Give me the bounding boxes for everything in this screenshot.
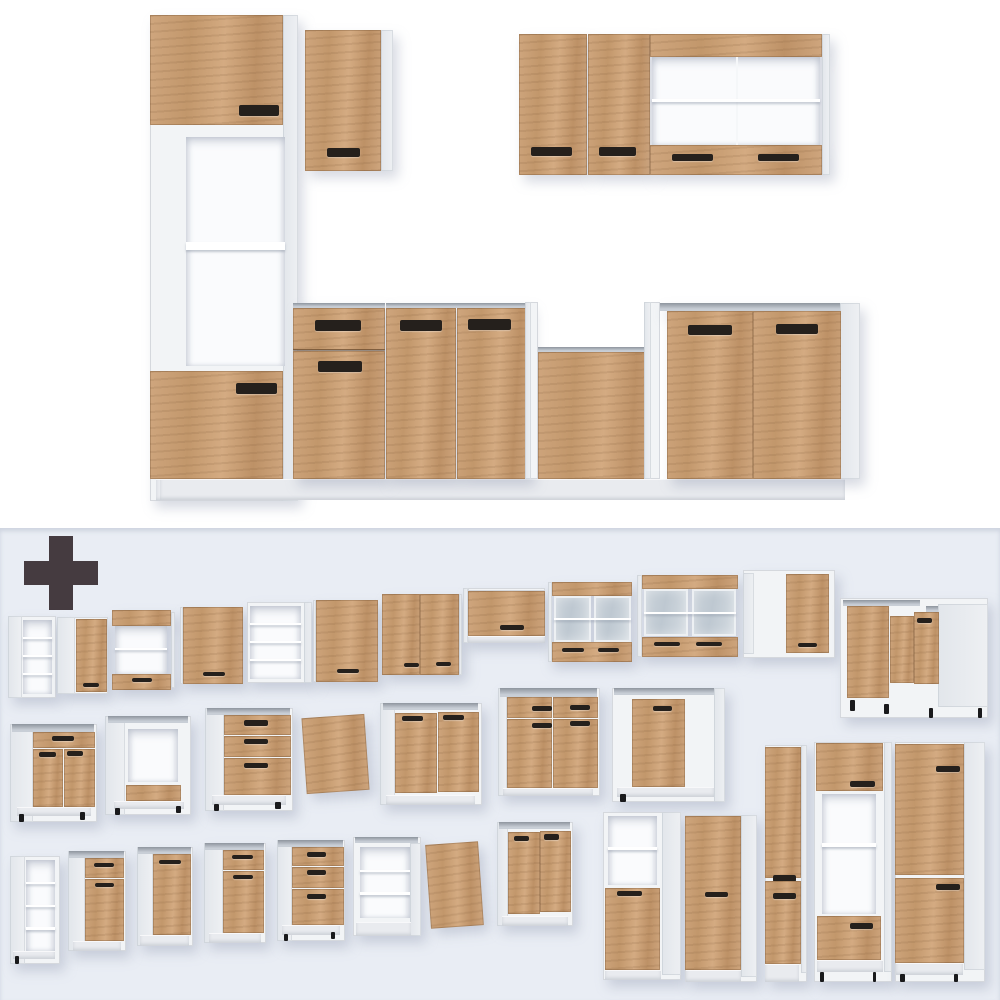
base-narrow-drawer-door-2 [204,843,266,943]
assembled-wall-open-unit [650,34,830,175]
side-panel [644,302,651,479]
wall-cabinet-single-door-1 [180,607,243,684]
door-handle [936,884,959,890]
door-handle [617,891,642,896]
leg [954,974,959,982]
assembled-wall-cabinet [305,30,393,171]
door-handle [404,663,419,667]
shelf [23,637,52,639]
wood-front-panel [301,714,369,794]
top-rim [12,724,95,732]
leg [80,812,85,820]
wood-front-panel [650,34,822,57]
door-handle [307,894,326,899]
wood-front-panel [642,575,738,589]
wood-front-panel [425,841,484,928]
door-handle [532,706,552,711]
door-handle [514,836,529,841]
door-handle [653,706,672,711]
assembled-side-post-left [525,302,538,479]
wood-front-panel [64,749,95,807]
side-panel [938,604,988,707]
shelf [26,882,55,884]
leg [115,808,120,815]
leg [929,708,933,718]
side-panel [137,847,153,946]
door-handle [94,863,114,868]
door-handle [598,648,620,652]
shelf [360,870,410,872]
wall-cabinet-door-right [57,617,108,694]
wood-front-panel [667,311,753,479]
side-panel [743,573,754,655]
top-rim [138,847,191,854]
door-handle [468,319,511,330]
top-rim [207,708,291,715]
side-panel [525,302,531,479]
door-handle [52,736,75,741]
tall-fridge-housing [895,742,985,982]
plinth [386,795,475,805]
side-panel [459,594,462,675]
wood-front-panel [85,879,123,941]
base-narrow-drawer-door-1 [68,851,126,951]
wood-front-panel [507,719,552,788]
door-handle [443,715,463,720]
leg [884,704,888,715]
leg [15,956,19,964]
tall-narrow-two-door [765,745,807,982]
door-handle [532,723,552,728]
assembled-sink-low-front [538,347,658,479]
shelf [23,673,52,675]
leg [978,708,982,718]
door-handle [696,642,722,646]
door-handle [315,320,361,331]
wood-front-panel [552,582,632,596]
base-sink-two-door [380,703,482,805]
leg [850,700,854,711]
door-handle [203,672,224,676]
wood-front-panel [914,612,939,684]
wood-front-panel [765,747,801,877]
door-handle [307,852,326,857]
shelf [360,892,410,894]
wood-front-panel [605,888,660,969]
open-shelf-niche [186,137,285,365]
wood-front-panel [642,637,738,658]
assembled-wall-door-1 [519,34,587,175]
door-handle [95,883,114,888]
plinth [73,941,122,951]
side-panel [801,745,807,973]
door-handle [236,383,277,394]
side-panel [741,815,757,977]
plinth [765,964,799,982]
wood-front-panel [386,308,456,479]
wood-front-panel [552,642,632,662]
leg [19,814,24,822]
shelf [250,659,301,661]
side-panel [840,303,860,479]
plinth [502,916,568,926]
plinth [686,970,741,982]
open-shelf-niche [608,816,656,885]
base-drawer-two-door [10,724,97,822]
leg [900,974,905,982]
leg [820,972,824,982]
shelf [652,99,820,102]
wood-front-panel [632,699,685,787]
assembled-base-drawer-door [293,303,385,479]
door-handle [132,678,152,682]
leg [873,972,877,982]
leg [214,804,219,811]
wood-front-panel [895,744,964,875]
door-handle [244,763,269,768]
door-handle [688,325,732,335]
shelf [26,905,55,907]
wood-front-panel [223,871,264,933]
door-handle [758,154,799,161]
wall-flap-cabinet [463,588,545,643]
door-handle [233,875,253,880]
door-handle [500,625,525,630]
base-narrow-door [137,847,193,946]
base-oven-housing [105,716,191,815]
wood-front-panel [753,311,841,479]
door-handle [773,893,796,899]
top-rim [499,822,570,829]
door-handle [850,781,875,787]
wood-front-panel [847,606,888,697]
plinth [160,479,845,500]
shelf [250,623,301,625]
base-corner-cabinet [840,598,988,718]
side-panel [662,812,681,975]
plinth [896,963,964,975]
shelf [26,927,55,929]
assembled-kitchen-plinth [160,479,845,500]
door-handle [400,320,442,331]
assembled-side-post-right [644,302,660,479]
shelf [115,648,167,650]
side-panel [304,602,312,683]
wood-front-panel [890,616,914,683]
door-handle [850,923,873,929]
door-handle [705,892,728,897]
base-three-drawer [205,708,293,811]
top-rim [108,716,188,723]
shelf [608,847,656,850]
plinth [209,933,261,943]
door-handle [776,324,818,334]
door-handle [318,361,362,372]
base-three-drawer-small [277,840,345,941]
assembled-wall-door-2 [588,34,650,175]
open-shelf-niche [822,794,877,914]
side-panel [822,34,830,175]
plinth [503,788,593,796]
wood-front-panel [85,858,123,878]
base-sink-two-door-small [497,822,573,926]
side-panel [380,703,395,805]
wood-front-panel [538,352,658,479]
side-panel [57,617,75,694]
base-open-shelf-unit [353,837,421,936]
door-handle [159,860,180,864]
side-panel [410,843,421,936]
door-handle [307,870,326,875]
open-shelf-niche [360,847,410,918]
shelf [822,843,877,847]
tall-oven-microwave-housing [814,742,892,982]
plinth [605,970,661,980]
wood-front-panel [126,785,181,801]
tall-single-door-cabinet [685,815,757,982]
base-open-shelf-narrow [10,856,60,964]
plinth [356,922,410,936]
door-handle [337,669,359,674]
door-handle [402,716,422,721]
door-handle [531,147,572,156]
side-panel [381,30,393,171]
door-handle [936,766,959,772]
wall-corner-cabinet [743,570,835,658]
leg [275,802,280,809]
shelf [554,618,631,620]
door-handle [917,618,932,623]
wood-front-panel [438,712,479,792]
side-panel [884,742,892,972]
door-handle [232,855,253,860]
wood-front-panel [153,854,191,935]
plinth [817,960,883,972]
leg [176,806,181,813]
wood-front-panel [223,850,264,870]
open-shelf-niche [128,729,178,782]
side-panel [68,851,85,951]
appliance-front-panel-small [425,841,484,928]
side-panel [171,612,175,689]
side-panel [497,822,508,926]
wood-front-panel [457,308,530,479]
wood-front-panel [508,832,539,913]
wood-front-panel [76,619,107,692]
door-handle [599,147,636,156]
plus-symbol [24,536,98,610]
wall-open-shelf-narrow [8,616,56,698]
assembled-base-two-door [386,303,530,479]
door-handle [239,105,279,116]
plinth [468,636,545,643]
door-handle [798,643,816,647]
shelf [23,655,52,657]
door-handle [562,648,584,652]
product-image-canvas [0,0,1000,1000]
top-rim [614,688,713,695]
door-handle [436,662,451,666]
door-handle [570,721,589,726]
door-handle [39,752,56,757]
leg [620,794,626,802]
wood-front-panel [112,610,171,626]
side-panel [714,688,725,802]
wall-glass-cabinet [548,582,635,662]
shelf [186,242,285,249]
side-panel [964,742,985,970]
wood-front-panel [553,719,598,788]
wall-glass-cabinet-wide [637,575,741,657]
top-rim [69,851,124,858]
shelf [644,612,736,614]
leg [331,932,335,939]
plinth [114,801,185,809]
door-handle [544,834,559,839]
door-handle [327,148,360,156]
plus-bar [24,561,98,585]
top-rim [383,703,478,710]
wood-front-panel [895,878,964,963]
top-rim [205,843,264,850]
wood-front-panel [786,574,828,653]
door-handle [244,739,269,744]
tall-oven-tower-low [603,812,681,980]
leg [284,934,288,941]
top-rim [660,303,840,311]
assembled-tall-oven-column [150,15,298,501]
wall-microwave-cabinet [112,610,175,690]
door-handle [67,751,83,756]
shelf [250,641,301,643]
wall-open-shelf-unit [247,602,312,683]
door-handle [570,705,589,710]
side-panel [498,688,507,796]
door-handle [654,642,680,646]
side-panel [204,843,223,943]
side-panel [10,856,25,964]
base-blind-corner [612,688,725,802]
side-panel [8,616,22,698]
door-handle [244,720,269,725]
wall-cabinet-single-door-2 [313,600,378,682]
appliance-front-panel [301,714,369,794]
door-handle [83,683,99,687]
wall-cabinet-double-door [382,594,462,675]
top-rim [500,688,597,697]
base-two-drawer-two-door [498,688,600,796]
assembled-base-two-door-right [660,303,860,479]
door-handle [672,154,713,161]
wood-front-panel [540,831,570,912]
wood-front-panel [395,713,437,793]
wood-front-panel [33,749,64,807]
plinth [617,787,714,797]
plinth [140,935,188,946]
top-rim [355,837,418,843]
